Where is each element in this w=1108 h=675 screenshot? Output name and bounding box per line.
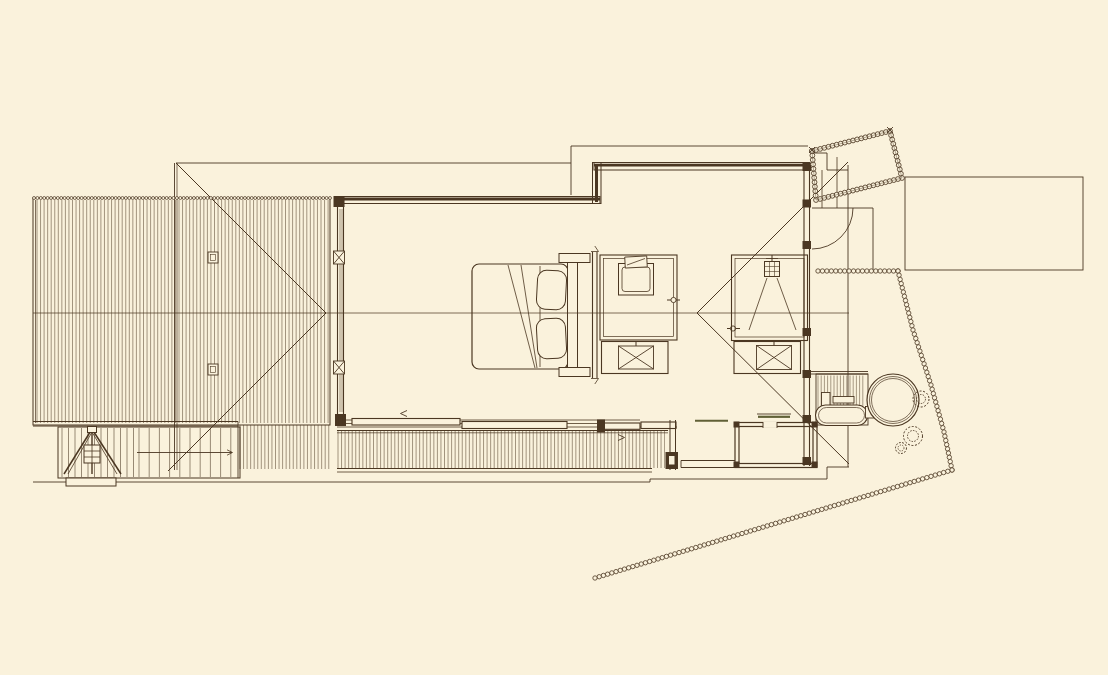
chain-link [179, 197, 182, 200]
chain-link [731, 534, 735, 538]
wc-post [734, 462, 740, 468]
chain-link [882, 269, 886, 273]
chain-link [135, 197, 138, 200]
chain-link [94, 197, 97, 200]
chain-link [618, 568, 622, 572]
east-post [803, 163, 812, 171]
chain-link [597, 575, 601, 579]
valve [671, 297, 676, 302]
chain-link [932, 396, 936, 400]
chain-link [643, 561, 647, 565]
wc-post [812, 422, 818, 428]
chain-link [70, 197, 73, 200]
chain-link [685, 548, 689, 552]
chain-link [114, 197, 117, 200]
chain-link [904, 482, 908, 486]
chain-link [736, 533, 740, 537]
chain-link [677, 550, 681, 554]
chain-link [845, 500, 849, 504]
chain-link [111, 197, 114, 200]
chain-link [250, 197, 253, 200]
chain-link [761, 525, 765, 529]
chain-link [77, 197, 80, 200]
chain-link [165, 197, 168, 200]
chain-link [856, 269, 860, 273]
chain-link [698, 544, 702, 548]
chain-link [946, 469, 950, 473]
chain-link [929, 474, 933, 478]
shower-head [765, 262, 780, 277]
chain-link [254, 197, 257, 200]
chain-link [288, 197, 291, 200]
chain-link [107, 197, 110, 200]
chain-link [664, 554, 668, 558]
chain-link [901, 290, 905, 294]
chain-link [782, 519, 786, 523]
chain-link [631, 564, 635, 568]
chain-link [271, 197, 274, 200]
chain-link [923, 366, 927, 370]
stone-wall-south [593, 468, 954, 580]
chain-link [900, 286, 904, 290]
chain-link [46, 197, 49, 200]
chain-link [121, 197, 124, 200]
plant [904, 427, 923, 446]
chain-link [67, 197, 70, 200]
chain-link [865, 269, 869, 273]
chain-link [914, 336, 918, 340]
chain-link [311, 197, 314, 200]
chain-link [946, 451, 950, 455]
chain-link [104, 197, 107, 200]
chain-link [53, 197, 56, 200]
east-deck-bench [833, 397, 854, 404]
chain-link [930, 387, 934, 391]
chain-link [155, 197, 158, 200]
chain-link [933, 473, 937, 477]
chain-link [862, 494, 866, 498]
partition-arrow-down [591, 379, 599, 385]
chain-link [152, 197, 155, 200]
stone-wall-east [896, 269, 954, 472]
wc-inner [739, 427, 813, 464]
chain-link [138, 197, 141, 200]
chain-link [947, 455, 951, 459]
chain-link [329, 197, 332, 200]
chain-link [158, 197, 161, 200]
chain-link [50, 197, 53, 200]
chain-link [727, 535, 731, 539]
chain-link [101, 197, 104, 200]
chain-link [825, 269, 829, 273]
chain-link [118, 197, 121, 200]
cabinet-x [757, 346, 792, 370]
chain-link [950, 468, 954, 472]
chain-link [39, 197, 42, 200]
sliding-panel [462, 422, 567, 429]
chain-link [887, 269, 891, 273]
chain-link [824, 506, 828, 510]
stone-wall-top [816, 269, 900, 273]
chain-link [899, 281, 903, 285]
chain-link [908, 481, 912, 485]
shower-spray [777, 278, 796, 330]
chain-link [799, 514, 803, 518]
chain-link [941, 426, 945, 430]
chain-link [898, 277, 902, 281]
chain-link [870, 492, 874, 496]
chain-link [820, 507, 824, 511]
chain-link [891, 269, 895, 273]
chain-link [949, 464, 953, 468]
chain-link [216, 197, 219, 200]
chain-link [264, 197, 267, 200]
chain-link [622, 567, 626, 571]
chain-link [206, 197, 209, 200]
chain-link [920, 357, 924, 361]
chain-link [298, 197, 301, 200]
chain-link [832, 503, 836, 507]
chain-link [925, 475, 929, 479]
wc-door-opening [763, 422, 777, 428]
chain-link [773, 521, 777, 525]
east-post [803, 370, 812, 378]
chain-link [301, 197, 304, 200]
slide-arrow-left [401, 411, 408, 417]
east-post [803, 241, 812, 249]
chain-link [639, 562, 643, 566]
pillow [536, 318, 567, 359]
chain-link [925, 370, 929, 374]
roof-valley-se [697, 313, 849, 464]
chain-link [605, 572, 609, 576]
terrace-outline [905, 177, 1083, 270]
floor-plan-page [0, 0, 1108, 675]
pillow [536, 270, 567, 310]
chain-link [847, 269, 851, 273]
chain-link [934, 400, 938, 404]
chain-link [635, 563, 639, 567]
chain-link [172, 197, 175, 200]
partition-arrow-up [591, 246, 599, 252]
chain-link [237, 197, 240, 200]
chain-link [87, 197, 90, 200]
chain-link [794, 515, 798, 519]
chain-link [145, 197, 148, 200]
mid-post [597, 420, 605, 433]
chain-link [291, 197, 294, 200]
chain-link [874, 269, 878, 273]
entry-door-swing [812, 208, 853, 249]
chain-link [294, 197, 297, 200]
hot-tub [867, 374, 919, 426]
chain-link [904, 303, 908, 307]
deck-boards [37, 200, 328, 423]
chain-link [944, 438, 948, 442]
chain-link [778, 520, 782, 524]
chain-link [908, 315, 912, 319]
chain-link [247, 197, 250, 200]
chain-link [834, 269, 838, 273]
chain-link [318, 197, 321, 200]
chain-link [60, 197, 63, 200]
chain-link [128, 197, 131, 200]
entry-opening [805, 209, 809, 244]
shower-spray [749, 278, 767, 330]
chain-link [196, 197, 199, 200]
chain-link [811, 510, 815, 514]
corner-post-sw [335, 414, 346, 426]
chain-link [186, 197, 189, 200]
chain-link [162, 197, 165, 200]
chain-link [723, 536, 727, 540]
east-post [803, 415, 812, 423]
chain-link [175, 197, 178, 200]
chain-link [243, 197, 246, 200]
chain-link [920, 477, 924, 481]
chain-link [942, 430, 946, 434]
chain-link [656, 557, 660, 561]
headboard-cap-top [559, 254, 590, 263]
plant [896, 443, 907, 454]
chain-link [944, 442, 948, 446]
chain-link [769, 522, 773, 526]
west-post-top [334, 196, 345, 207]
chain-link [803, 512, 807, 516]
chain-link [903, 298, 907, 302]
chain-link [601, 573, 605, 577]
chain-link [857, 496, 861, 500]
chain-link [233, 197, 236, 200]
chain-link [73, 197, 76, 200]
chain-link [626, 566, 630, 570]
chain-link [757, 526, 761, 530]
ground-line [33, 467, 849, 482]
deck-scallop-edge [33, 197, 332, 200]
west-post-mid [334, 251, 345, 264]
chain-link [36, 197, 39, 200]
chain-link [910, 324, 914, 328]
chain-link [948, 459, 952, 463]
chain-link [838, 269, 842, 273]
chain-link [281, 197, 284, 200]
chain-link [182, 197, 185, 200]
chain-link [909, 319, 913, 323]
chain-link [931, 391, 935, 395]
chain-link [706, 541, 710, 545]
chain-link [878, 269, 882, 273]
chain-link [828, 505, 832, 509]
chain-link [891, 486, 895, 490]
chain-link [305, 197, 308, 200]
chain-link [715, 539, 719, 543]
chain-link [941, 470, 945, 474]
chain-link [927, 379, 931, 383]
chain-link [260, 197, 263, 200]
chain-link [315, 197, 318, 200]
chain-link [937, 413, 941, 417]
chain-link [220, 197, 223, 200]
chain-link [866, 493, 870, 497]
chain-link [192, 197, 195, 200]
chain-link [820, 269, 824, 273]
chain-link [869, 269, 873, 273]
chain-link [853, 497, 857, 501]
chain-link [80, 197, 83, 200]
blanket-fold [508, 265, 535, 368]
chain-link [816, 269, 820, 273]
fire-base-plate [66, 478, 116, 486]
chain-link [744, 530, 748, 534]
chain-link [84, 197, 87, 200]
chain-link [878, 489, 882, 493]
chain-link [895, 484, 899, 488]
chain-link [257, 197, 260, 200]
slide-arrow-right [618, 435, 625, 441]
chain-link [915, 340, 919, 344]
chain-link [842, 269, 846, 273]
chain-link [926, 374, 930, 378]
chain-link [935, 404, 939, 408]
east-post [803, 200, 812, 208]
chain-link [740, 531, 744, 535]
chain-link [274, 197, 277, 200]
fixed-panel [641, 422, 676, 429]
chain-link [97, 197, 100, 200]
chain-link [815, 508, 819, 512]
chain-link [752, 528, 756, 532]
blanket-fold [521, 265, 537, 368]
cabinet-x [619, 346, 654, 369]
chain-link [836, 502, 840, 506]
west-post-mid [334, 361, 345, 374]
chain-link [610, 571, 614, 575]
chain-link [807, 511, 811, 515]
chain-link [922, 362, 926, 366]
chain-link [652, 558, 656, 562]
end-post-core [669, 456, 675, 465]
roof-valley-ne [697, 162, 848, 313]
chain-link [874, 491, 878, 495]
chain-link [689, 547, 693, 551]
chain-link [668, 553, 672, 557]
headboard [568, 255, 578, 376]
chain-link [33, 197, 36, 200]
sliding-panel [603, 423, 640, 429]
chain-link [308, 197, 311, 200]
tripod-apex [88, 427, 97, 433]
chain-link [851, 269, 855, 273]
chain-link [702, 543, 706, 547]
chain-link [322, 197, 325, 200]
chain-link [905, 307, 909, 311]
chain-link [897, 273, 901, 277]
chain-link [937, 472, 941, 476]
chain-link [284, 197, 287, 200]
chain-link [90, 197, 93, 200]
chain-link [929, 383, 933, 387]
chain-link [124, 197, 127, 200]
chain-link [902, 294, 906, 298]
chain-link [841, 501, 845, 505]
deck-corner-boards [240, 425, 329, 469]
chain-link [203, 197, 206, 200]
chain-link [786, 517, 790, 521]
chain-link [765, 524, 769, 528]
chain-link [56, 197, 59, 200]
sliding-panel [352, 419, 460, 426]
chain-link [694, 545, 698, 549]
chain-link [719, 538, 723, 542]
chain-link [829, 269, 833, 273]
chain-link [943, 434, 947, 438]
wc-post [812, 462, 818, 468]
wc-post [734, 422, 740, 428]
chain-link [887, 487, 891, 491]
chain-link [43, 197, 46, 200]
chain-link [148, 197, 151, 200]
chain-link [223, 197, 226, 200]
chain-link [614, 569, 618, 573]
chain-link [899, 483, 903, 487]
chain-link [911, 328, 915, 332]
chain-link [860, 269, 864, 273]
chain-link [918, 349, 922, 353]
chain-link [916, 478, 920, 482]
chain-link [912, 479, 916, 483]
chain-link [660, 555, 664, 559]
chain-link [919, 353, 923, 357]
chain-link [916, 345, 920, 349]
chain-link [230, 197, 233, 200]
chain-link [267, 197, 270, 200]
chain-link [593, 576, 597, 580]
chain-link [169, 197, 172, 200]
headboard-cap-bottom [559, 368, 590, 377]
chain-link [912, 332, 916, 336]
chain-link [673, 552, 677, 556]
chain-link [938, 417, 942, 421]
plant-inner [898, 445, 904, 451]
chain-link [790, 516, 794, 520]
chain-link [936, 408, 940, 412]
chain-link [63, 197, 66, 200]
chain-link [907, 311, 911, 315]
chain-link [189, 197, 192, 200]
chain-link [277, 197, 280, 200]
chain-link [209, 197, 212, 200]
chain-link [226, 197, 229, 200]
chain-link [141, 197, 144, 200]
floor-plan-drawing [0, 0, 1108, 675]
chain-link [647, 559, 651, 563]
chain-link [325, 197, 328, 200]
chain-link [748, 529, 752, 533]
sink [619, 264, 654, 296]
south-deck-boards [338, 431, 665, 468]
chain-link [681, 549, 685, 553]
deck-post [208, 364, 218, 375]
chain-link [199, 197, 202, 200]
chain-link [710, 540, 714, 544]
chain-link [945, 447, 949, 451]
chain-link [939, 421, 943, 425]
chain-link [240, 197, 243, 200]
chain-link [883, 488, 887, 492]
chain-link [131, 197, 134, 200]
plant-inner [908, 431, 919, 442]
chain-link [213, 197, 216, 200]
